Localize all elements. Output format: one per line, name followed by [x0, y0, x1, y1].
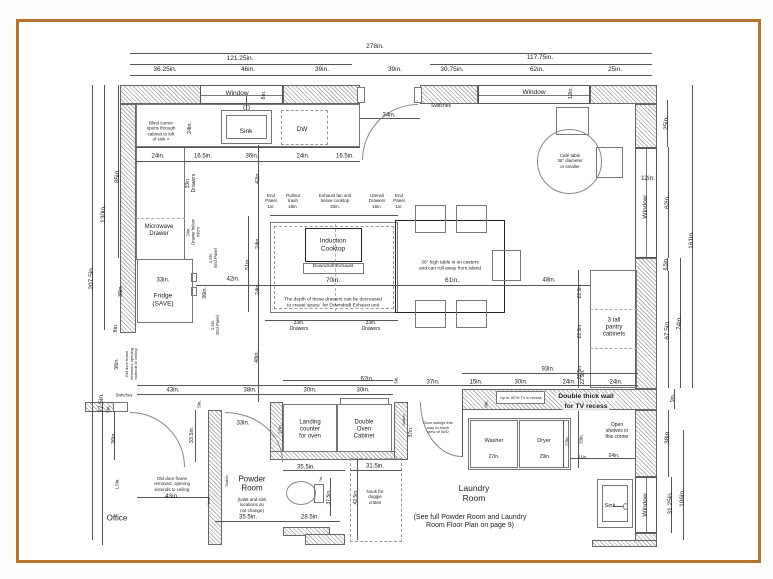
wall-powder-left	[208, 410, 222, 545]
dim: 36in.	[114, 358, 120, 370]
wall-right-lower	[635, 410, 657, 477]
dim: 7in.	[319, 476, 323, 482]
dim: 24in.	[609, 379, 622, 386]
wall-left	[120, 104, 136, 333]
dim: 11in.	[578, 454, 587, 459]
dim: 36in.	[118, 285, 124, 297]
blind-corner-note: Blind corner opens through cabinet to le…	[147, 120, 176, 141]
wall-top-left	[120, 85, 202, 104]
dim: 62in.	[530, 66, 544, 74]
floor-plan-page: 278in.121.25in.117.75in.36.25in.46in.39i…	[0, 0, 773, 579]
dim-line	[130, 64, 352, 65]
wall-top-mid-2	[420, 85, 478, 104]
wall-powder-bottom-b	[305, 534, 345, 545]
dim: 46in.	[241, 66, 255, 74]
dim: 85in.	[114, 169, 122, 183]
dim-line	[430, 64, 652, 65]
cabinet-divider	[136, 218, 185, 219]
dim-line	[92, 85, 93, 540]
nook-label: Nook for doggie crates	[366, 489, 383, 505]
wall-top-mid-1	[283, 85, 360, 104]
oven-top-detail	[340, 398, 389, 405]
dim: 36in.	[245, 153, 258, 160]
dim: 15in.	[469, 379, 482, 386]
dim: 24in.	[609, 454, 620, 460]
see-plan-note: (See full Powder Room and Laundry Room F…	[414, 514, 527, 531]
wall-right-upper	[635, 104, 657, 148]
vent-label: Vent	[207, 497, 211, 505]
fridge-label: Fridge (SAVE)	[152, 292, 173, 307]
dim: 93in.	[541, 366, 554, 373]
dim: 24in.	[255, 237, 261, 249]
open-shelves-note: Open shelves in this corner	[605, 423, 628, 441]
dim: 33in.	[236, 420, 249, 427]
switch-label: Switch	[402, 414, 406, 425]
floor-plan: 278in.121.25in.117.75in.36.25in.46in.39i…	[0, 0, 773, 579]
dim: 1.5in. End Panel	[211, 315, 221, 334]
dim: 5in.	[393, 376, 398, 383]
dim: 8in.	[261, 91, 267, 100]
dim: 130in.	[100, 205, 108, 223]
downdraft-label: Downdraft Exhaust	[313, 264, 354, 270]
dim: 62in.	[664, 195, 672, 209]
door-jamb	[414, 87, 422, 103]
dim: 37in.	[409, 427, 415, 438]
dim: Exhaust fan unit below cooktop 30in.	[319, 193, 351, 209]
dim: 25in.	[663, 116, 671, 130]
dim-line	[130, 53, 652, 54]
window-label: Window	[225, 90, 248, 98]
dim: 33.5in.	[189, 427, 195, 444]
dim: 42in.	[255, 172, 261, 184]
dim: 22.5in.	[578, 323, 584, 338]
wall-top-right	[590, 85, 657, 104]
dim: End Panel 1in.	[265, 193, 277, 209]
dim: 1.5in.	[114, 478, 119, 489]
door-jamb	[113, 402, 128, 412]
dim: 43in.	[166, 387, 179, 394]
dim: 42in.	[226, 276, 239, 283]
door-swing-office	[130, 412, 185, 467]
microwave-drawer-label: Microwave Drawer	[145, 224, 174, 238]
old-door-note: Old door frame removed, opening extends …	[125, 348, 139, 380]
dim: 38in.	[664, 430, 672, 444]
pantry-divider	[590, 348, 637, 349]
dim: 25in.	[608, 66, 622, 74]
toilet-tank	[314, 484, 324, 503]
dim: 6.5in.	[664, 258, 670, 270]
dim: 24in.	[255, 283, 261, 295]
induction-cooktop-label: Induction Cooktop	[320, 237, 346, 252]
dim: Utensil Drawers 18in.	[369, 193, 386, 209]
dim: 48in.	[542, 277, 555, 284]
dim: 30in.	[303, 387, 316, 394]
wall-bottom-right	[592, 540, 657, 547]
laundry-door-leaf	[462, 402, 463, 457]
room-label-office: Office	[107, 513, 128, 522]
dim: 37.5in.	[327, 489, 333, 504]
toilet-bowl	[286, 481, 316, 505]
dim: 30in.	[356, 387, 369, 394]
dim: 12in.	[568, 87, 574, 99]
dim: 43in.	[165, 493, 179, 501]
dim: 12in.	[641, 175, 655, 183]
dim: 22.5in.	[578, 283, 584, 298]
dim: 39in.	[315, 66, 329, 74]
left-cabinet-run	[136, 147, 185, 260]
dim: 42.5in.	[354, 489, 360, 504]
dim: 161in.	[688, 231, 696, 249]
dim: 5in.	[196, 400, 201, 407]
dim: 33in.	[578, 434, 583, 444]
chair	[415, 205, 446, 233]
dim: 36.25in.	[153, 66, 176, 74]
old-door-note: Old door frame removed, opening extends …	[154, 476, 190, 492]
sink-label: Sink	[605, 503, 616, 509]
dim: 29in.	[540, 455, 551, 461]
room-label-laundry: Laundry Room	[459, 483, 490, 503]
window-label: Window	[522, 89, 545, 97]
switch-label: Switch	[225, 475, 229, 486]
dim: 31.5in.	[366, 463, 384, 470]
dim-line	[683, 430, 684, 540]
dim: 35.5in.	[239, 514, 257, 521]
dim: 30in.	[514, 379, 527, 386]
faucet-line	[246, 96, 247, 110]
dim: 207.5in.	[88, 266, 96, 289]
dim: 51in.	[245, 258, 251, 270]
dw-label: DW	[297, 126, 308, 134]
dim: 16.5in.	[194, 153, 212, 160]
drawer-depth-note: The depth of these drawers can be decrea…	[284, 297, 382, 308]
dim: 22.5in.	[578, 364, 584, 379]
dim: 121.25in.	[227, 55, 254, 63]
dim: 106in.	[679, 489, 687, 507]
wall-right-mid	[635, 258, 657, 389]
dim: 70in.	[326, 277, 340, 285]
table-note: 36" high table is on casters and can rol…	[419, 260, 481, 271]
dim: 33in. Drawers	[290, 321, 309, 333]
dim: 62in.	[360, 376, 373, 383]
sink-br-faucet-dot	[623, 503, 628, 510]
dim: 8in.	[113, 324, 119, 333]
dryer-label: Dryer	[537, 438, 550, 444]
dim: 27in.	[277, 424, 282, 434]
dim: 36in.	[202, 287, 208, 299]
dim: 27in.	[489, 455, 500, 461]
dim-line	[102, 402, 103, 545]
dim: 9in.	[483, 400, 488, 407]
dim: 24in.	[151, 153, 164, 160]
fridge-handle-2	[191, 287, 197, 296]
fridge-handle-1	[191, 273, 197, 282]
dim-line	[136, 161, 360, 162]
counter-edge	[136, 147, 360, 148]
dim: 48in.	[254, 351, 260, 363]
dim: 30.75in.	[440, 66, 463, 74]
dim: 9in.	[671, 394, 677, 402]
dim: 33in. Drawers	[186, 174, 198, 193]
dim: End Panel 1in.	[393, 193, 405, 209]
powder-note: (toilet and sink locations do not change…	[237, 497, 266, 513]
dim: 16.5in.	[336, 153, 354, 160]
dim-line	[130, 75, 652, 76]
pantry-label: 3 tall pantry cabinets	[603, 317, 625, 338]
dim: 27in.	[564, 436, 569, 446]
dim: 38in.	[243, 387, 256, 394]
dim: 28.5in.	[301, 514, 319, 521]
double-oven-label: Double Oven Cabinet	[354, 419, 375, 440]
landing-counter-label: Landing counter for oven	[299, 419, 321, 440]
dim: 67.5in.	[664, 320, 672, 340]
chair	[456, 300, 487, 328]
dim: 37in.	[426, 379, 439, 386]
sink-label: Sink	[240, 128, 253, 136]
chair	[456, 205, 487, 233]
switches-label: Switches	[116, 394, 133, 399]
dim-line	[270, 215, 398, 216]
dim: 1.5in. End Panel	[209, 248, 219, 267]
dim: 5in.	[105, 405, 110, 412]
dim: 34in.	[382, 112, 395, 119]
dim: 117.75in.	[527, 54, 553, 62]
wall-right-of-oven	[394, 402, 408, 460]
chair	[415, 300, 446, 328]
dim: 39in.	[388, 66, 402, 74]
pantry-divider	[590, 309, 637, 310]
room-label-powder: Powder Room	[238, 475, 265, 494]
window-label: Window	[642, 195, 650, 218]
dim: 24in.	[296, 153, 309, 160]
cafe-table-note: Café table 36" diameter or smaller	[557, 153, 582, 169]
washer-label: Washer	[485, 438, 504, 444]
dim: 74in.	[676, 316, 684, 330]
dim: 33in. Drawers	[362, 321, 381, 333]
dim: 31.25in.	[667, 491, 675, 514]
dim: 36in.	[111, 432, 117, 444]
dim-line	[215, 521, 340, 522]
dim: 24in. Drawer below micro	[187, 219, 202, 245]
dim: 278in.	[366, 43, 384, 51]
switches-label: Switches	[431, 104, 451, 110]
chair	[492, 250, 521, 281]
dim: 24in.	[562, 379, 575, 386]
fridge	[137, 259, 193, 323]
double-thick-wall-label: Double thick wall	[556, 393, 616, 401]
double-thick-wall-label: for TV recess	[562, 403, 609, 411]
door-jamb	[357, 87, 365, 103]
dim: Pullout trash 18in.	[286, 193, 300, 209]
tv-recess-label: Up to 26"W TV in recess	[500, 396, 541, 400]
window-label: Window	[642, 493, 650, 516]
dim-line	[283, 380, 393, 381]
dim: 61in.	[445, 277, 459, 285]
door-swing-note: Door swings this way to block view of W/…	[423, 421, 452, 435]
dim: 24in.	[187, 122, 193, 134]
dim: 33in.	[156, 277, 169, 284]
dim: 35.5in.	[297, 464, 315, 471]
